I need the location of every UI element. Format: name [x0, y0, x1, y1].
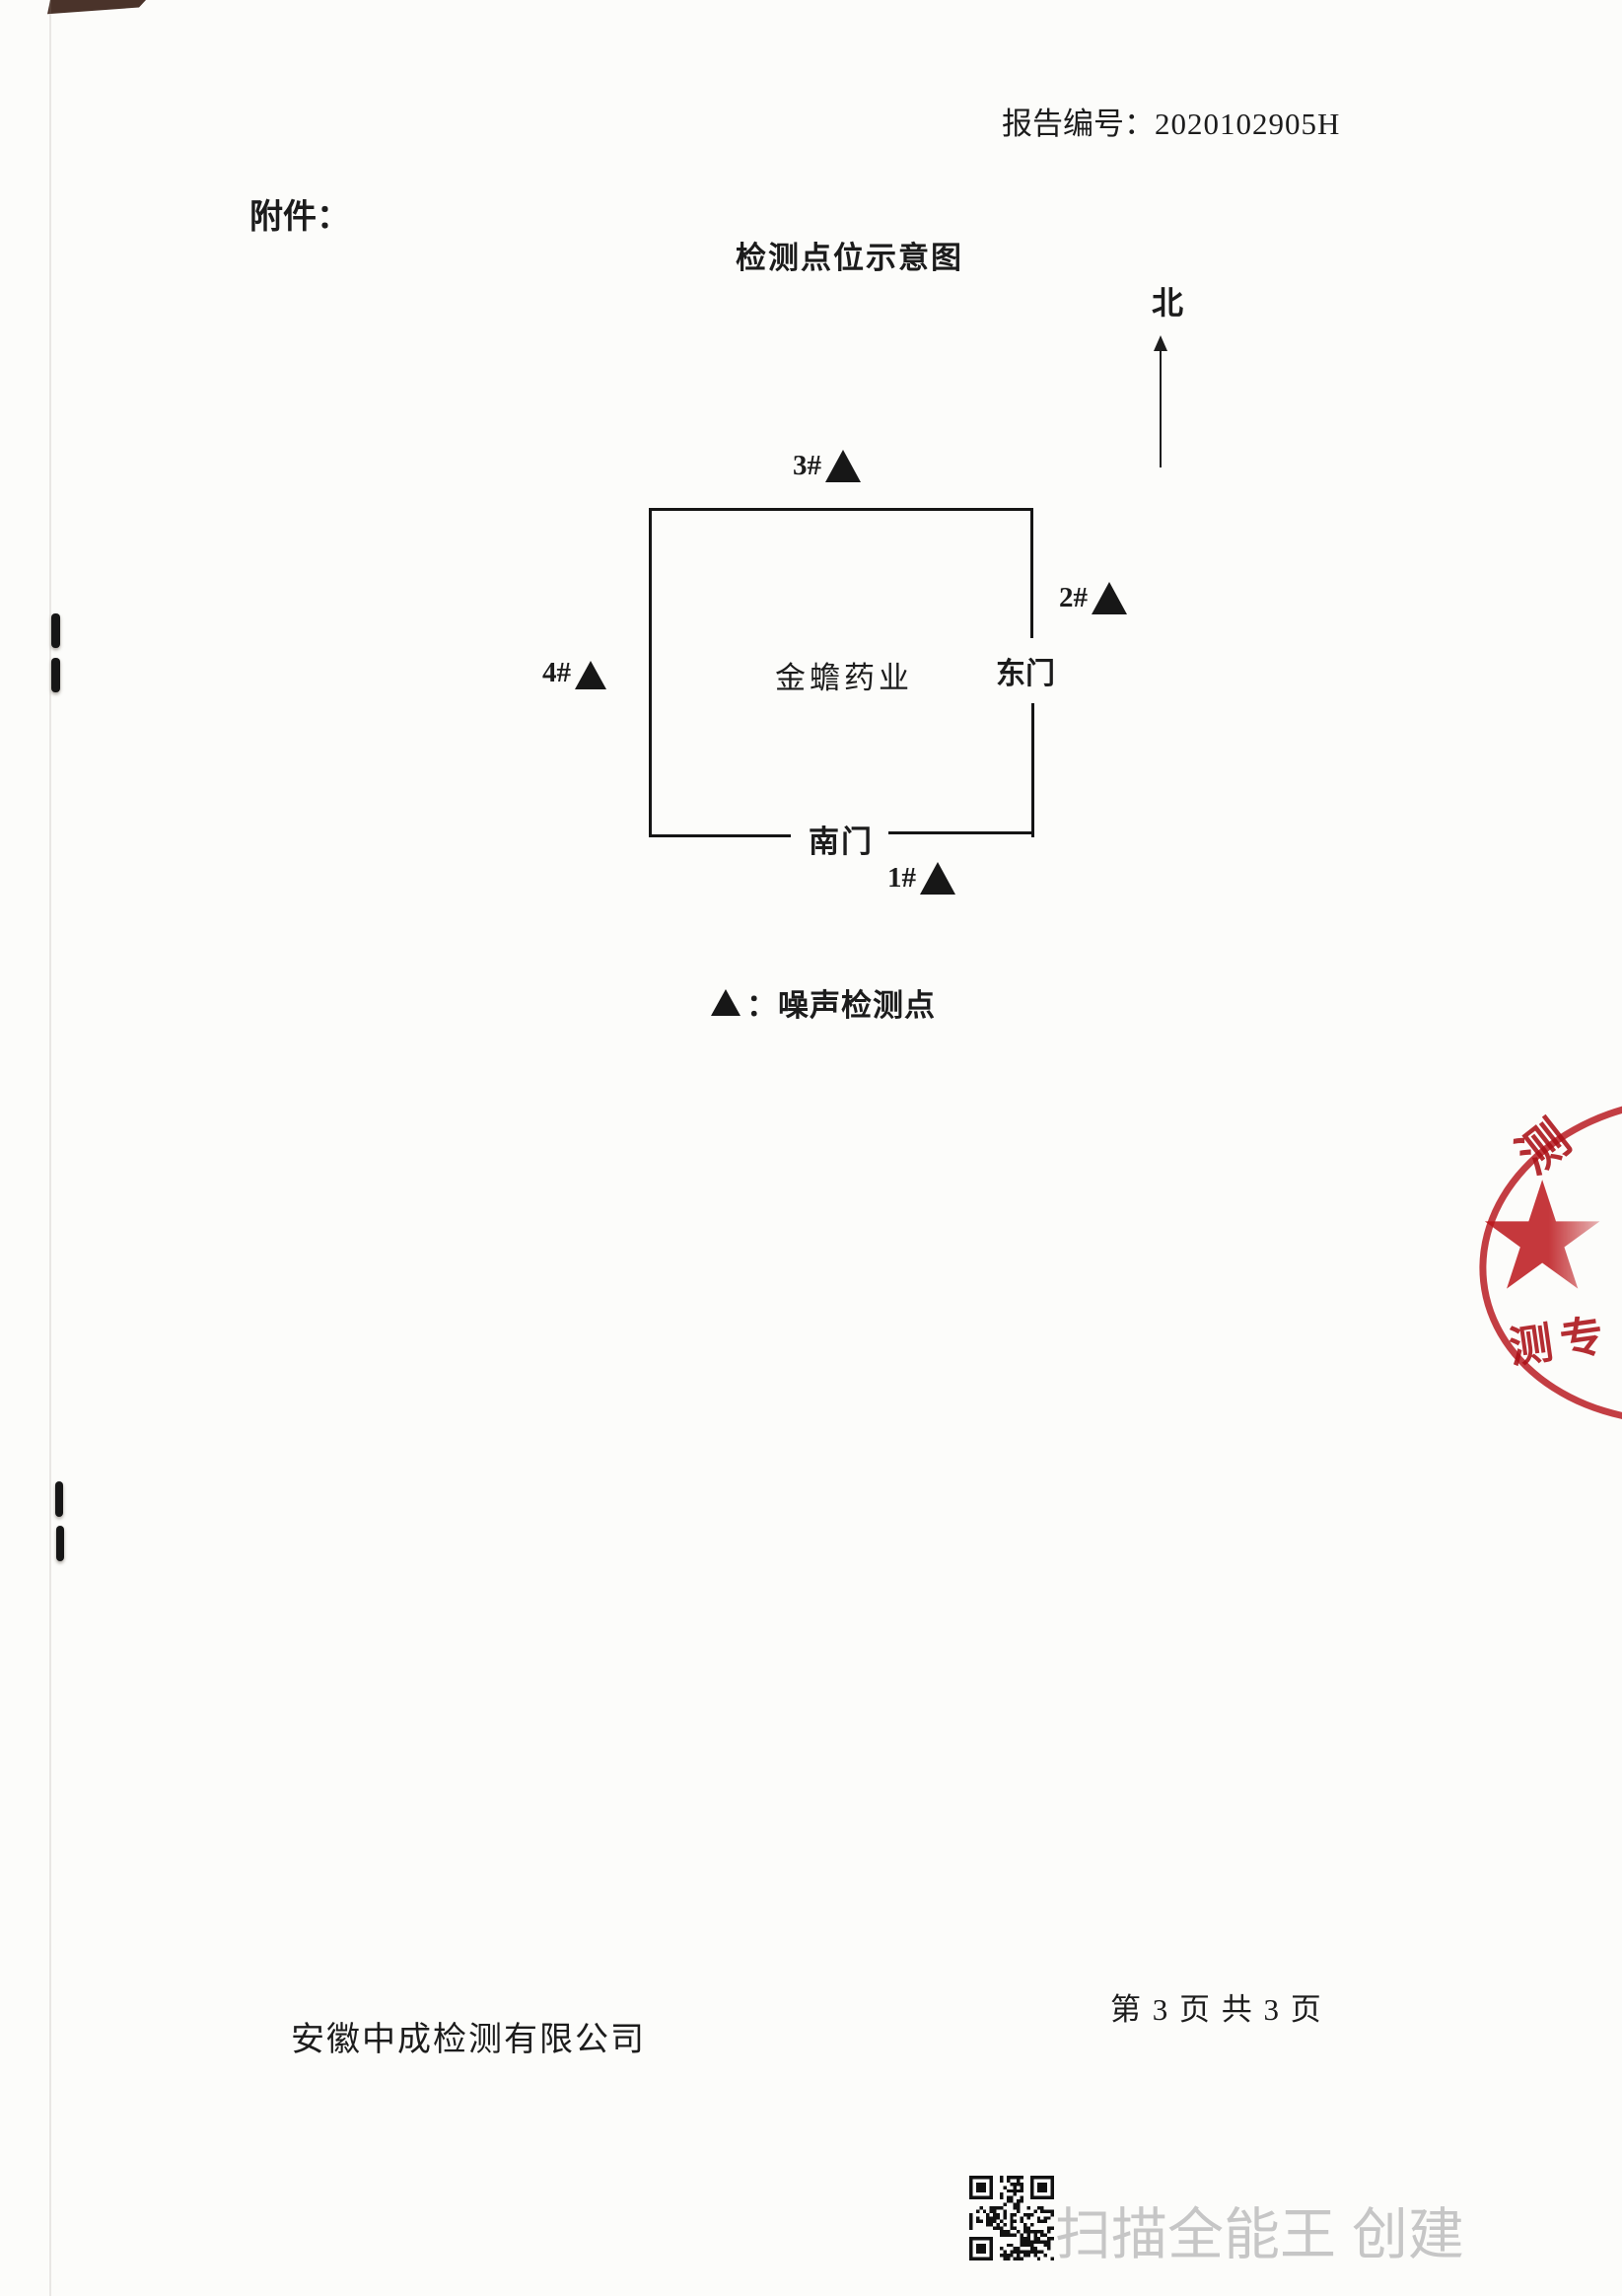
- page-number: 第 3 页 共 3 页: [1110, 1984, 1323, 2029]
- report-number: 报告编号：2020102905H: [1002, 99, 1340, 143]
- triangle-icon: [920, 862, 955, 895]
- triangle-icon: [711, 989, 740, 1016]
- qr-code-icon: [969, 2175, 1054, 2261]
- legend-label: ：噪声检测点: [746, 980, 936, 1025]
- binding-mark: [55, 1481, 63, 1517]
- report-number-value: 2020102905H: [1155, 107, 1340, 141]
- marker-label: 2#: [1059, 584, 1088, 614]
- marker-label: 4#: [542, 659, 571, 689]
- east-gate-label: 东门: [996, 649, 1055, 692]
- diagram-title: 检测点位示意图: [736, 233, 963, 277]
- binding-mark: [56, 1526, 64, 1561]
- binding-mark: [51, 613, 60, 648]
- noise-monitoring-point-3: 3#: [793, 450, 861, 482]
- scanner-watermark-text: 扫描全能王 创建: [1055, 2189, 1464, 2270]
- boundary-bottom-left: [651, 834, 791, 837]
- boundary-top: [649, 508, 1033, 511]
- scan-corner-artifact: [47, 0, 146, 15]
- north-arrow-icon: [1160, 337, 1162, 467]
- noise-monitoring-point-2: 2#: [1059, 582, 1127, 614]
- triangle-icon: [825, 450, 861, 482]
- marker-label: 1#: [887, 864, 916, 895]
- attachment-label: 附件：: [249, 189, 350, 238]
- marker-label: 3#: [793, 452, 821, 482]
- legend: ：噪声检测点: [711, 980, 936, 1025]
- boundary-right-upper: [1030, 508, 1033, 638]
- noise-monitoring-point-1: 1#: [887, 862, 955, 895]
- scanned-page: 报告编号：2020102905H 附件： 检测点位示意图 北 金蟾药业 东门 南…: [0, 0, 1622, 2296]
- triangle-icon: [575, 661, 606, 689]
- building-label: 金蟾药业: [775, 653, 913, 697]
- report-number-label: 报告编号：: [1002, 107, 1155, 141]
- north-label: 北: [1152, 278, 1183, 323]
- triangle-icon: [1092, 582, 1127, 614]
- south-gate-label: 南门: [809, 817, 874, 861]
- boundary-left: [649, 508, 652, 837]
- binding-mark: [51, 658, 60, 692]
- footer-company-name: 安徽中成检测有限公司: [291, 2012, 646, 2060]
- noise-monitoring-point-4: 4#: [542, 659, 606, 689]
- boundary-right-lower: [1031, 703, 1034, 837]
- page-crease: [49, 0, 51, 2296]
- boundary-bottom-right: [888, 831, 1034, 834]
